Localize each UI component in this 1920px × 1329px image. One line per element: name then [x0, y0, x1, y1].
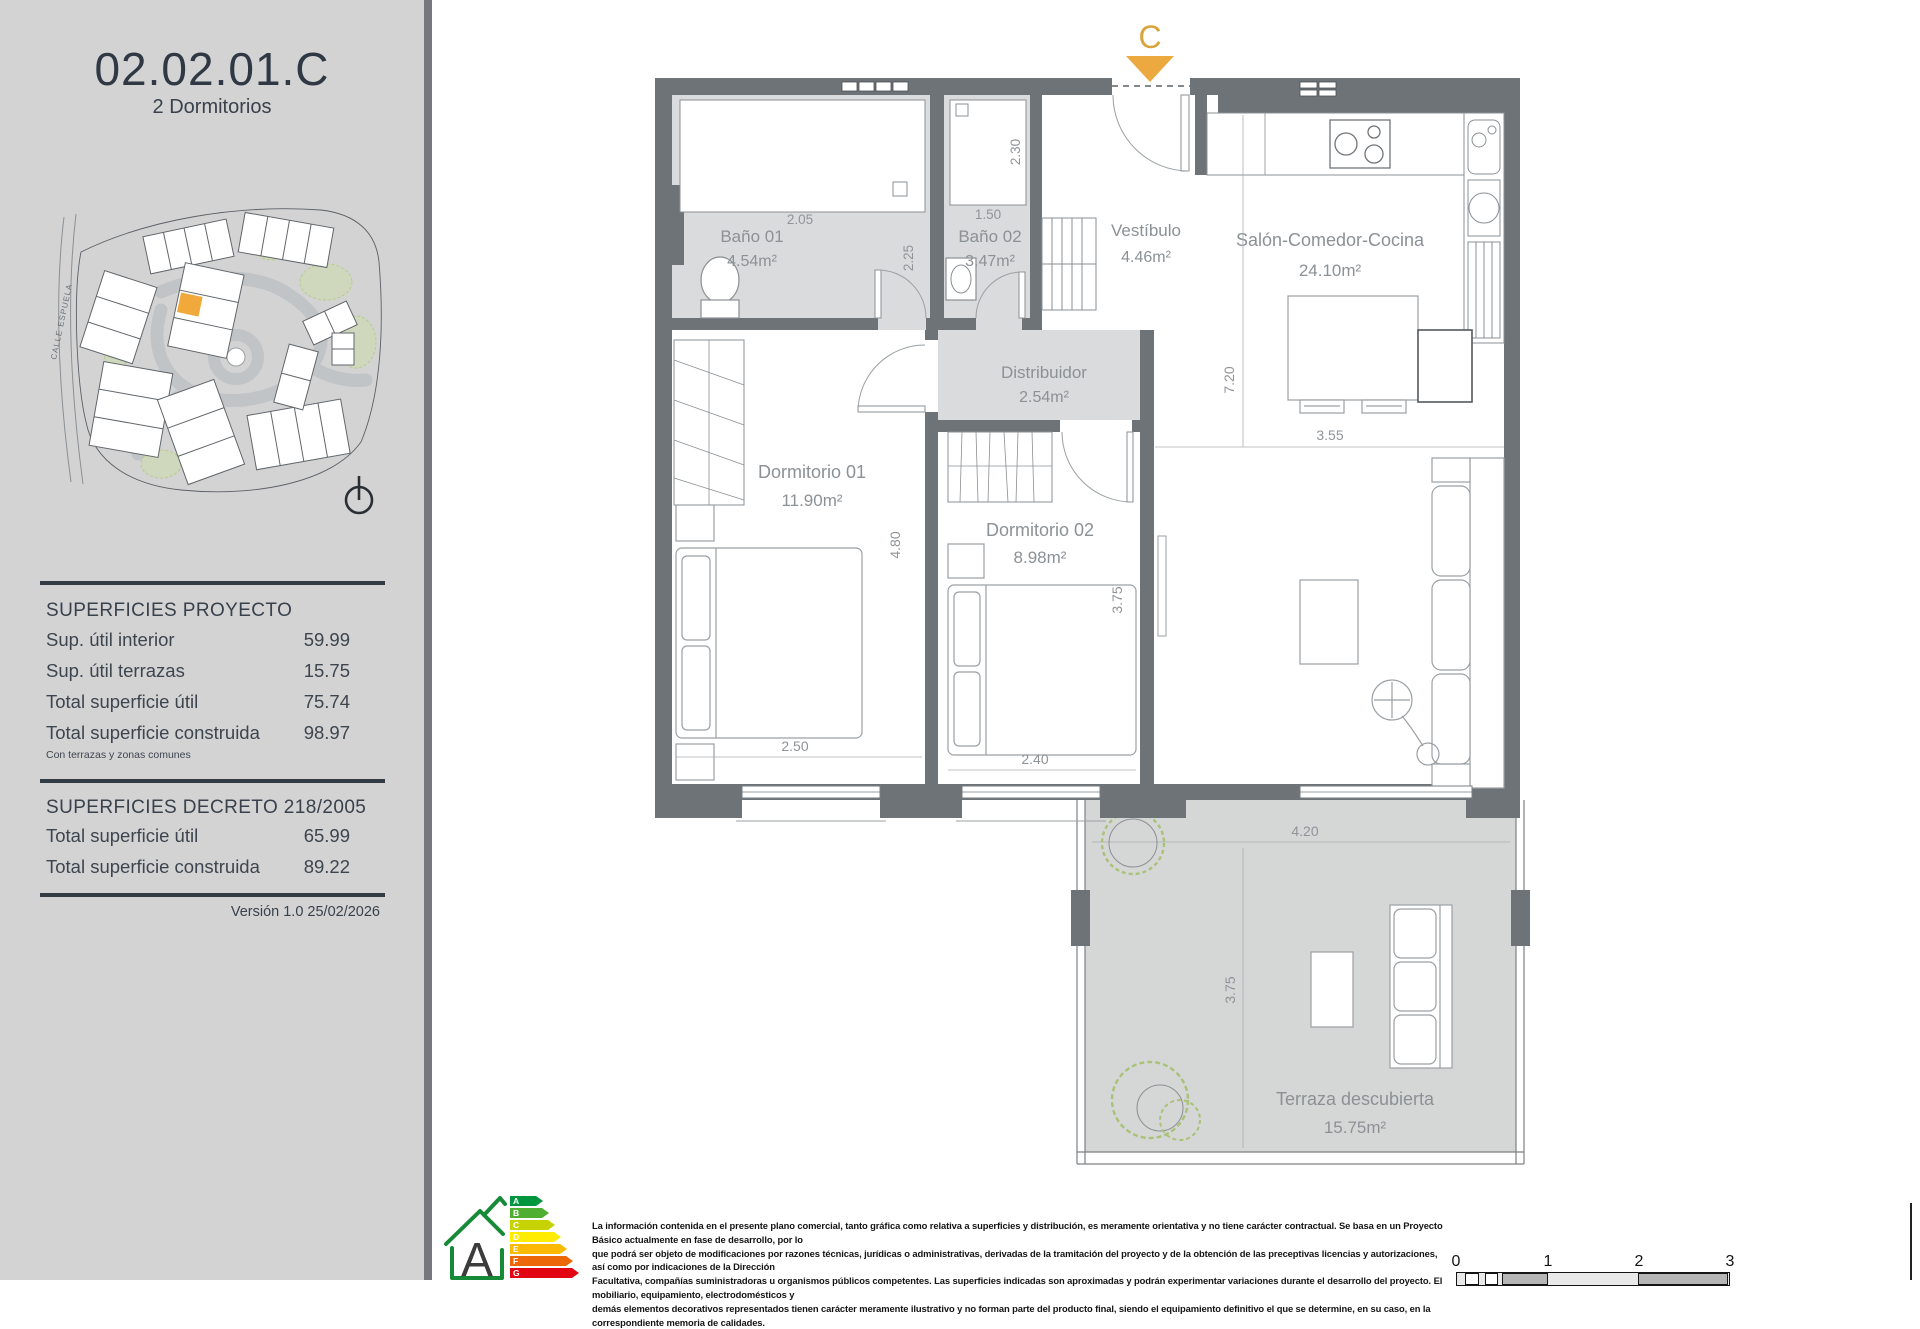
room-label: Baño 02 [958, 227, 1021, 246]
wardrobe-icon [674, 340, 744, 505]
room-area: 4.46m² [1121, 249, 1171, 266]
bed-icon [676, 505, 862, 780]
dim-bano01-width: 2.05 [787, 212, 813, 227]
dining-table [1288, 296, 1418, 413]
room-label: Dormitorio 01 [758, 462, 866, 482]
scale-bar [1456, 1272, 1730, 1286]
floorplan-sheet: { "colors": { "accent_gold": "#EBA93F", … [0, 0, 1920, 1280]
floor-lamp-icon [1372, 680, 1439, 765]
dim-dorm01-width: 2.50 [781, 738, 808, 754]
vestibule: Vestíbulo 4.46m² [1042, 218, 1181, 310]
dim-terraza-height: 3.75 [1222, 976, 1238, 1003]
svg-text:D: D [513, 1232, 519, 1242]
section-marker-letter: C [1138, 19, 1161, 55]
room-area: 4.54m² [727, 253, 777, 270]
section-marker: C [1126, 19, 1174, 82]
dim-dorm01-height: 4.80 [887, 531, 903, 558]
shower-drain-icon [893, 182, 907, 196]
room-area: 24.10m² [1299, 261, 1362, 280]
bed-icon [948, 544, 1136, 755]
scale-tick: 2 [1635, 1253, 1644, 1271]
room-area: 3.47m² [965, 253, 1015, 270]
sheet-edge-mark [1910, 1203, 1912, 1280]
svg-text:E: E [513, 1244, 519, 1254]
room-area: 11.90m² [781, 491, 842, 510]
disclaimer-line: La información contenida en el presente … [592, 1219, 1444, 1247]
dim-bano02-width: 1.50 [975, 207, 1001, 222]
kitchen-island [1418, 330, 1472, 402]
dim-terraza-width: 4.20 [1291, 823, 1318, 839]
tv-icon [1158, 536, 1166, 636]
coffee-table [1300, 580, 1358, 664]
scale-tick: 1 [1544, 1253, 1553, 1271]
room-label: Salón-Comedor-Cocina [1236, 230, 1425, 250]
disclaimer-line: Facultativa, compañías suministradoras u… [592, 1274, 1444, 1302]
disclaimer-line: que podrá ser objeto de modificaciones p… [592, 1247, 1444, 1275]
dim-dorm02-width: 2.40 [1021, 751, 1048, 767]
terrace: 4.20 3.75 Terraza descubierta 15.75m² [1071, 800, 1530, 1164]
wardrobe-icon [948, 432, 1052, 502]
section-arrow-icon [1126, 56, 1174, 82]
svg-text:F: F [513, 1256, 518, 1266]
bedroom-2: Dormitorio 02 8.98m² 3.75 2.40 [948, 432, 1136, 770]
energy-rating-letter: A [461, 1234, 493, 1280]
energy-label: A A B C D E F G [440, 1192, 590, 1280]
room-label: Distribuidor [1001, 363, 1087, 382]
dim-dorm02-height: 3.75 [1109, 586, 1125, 613]
nightstand-icon [948, 544, 984, 578]
dim-salon-height: 7.20 [1221, 366, 1237, 393]
room-label: Baño 01 [720, 227, 783, 246]
legal-disclaimer: La información contenida en el presente … [592, 1219, 1444, 1329]
terrace-pilaster [1511, 890, 1530, 946]
energy-scale: A B C D E F G [510, 1196, 579, 1278]
room-area: 15.75m² [1324, 1118, 1387, 1137]
room-label: Vestíbulo [1111, 221, 1181, 240]
svg-text:B: B [513, 1208, 519, 1218]
scale-tick: 0 [1452, 1253, 1461, 1271]
outdoor-table [1311, 952, 1353, 1027]
room-label: Terraza descubierta [1276, 1089, 1435, 1109]
room-area: 8.98m² [1014, 548, 1067, 567]
living-kitchen: Salón-Comedor-Cocina 24.10m² 7.20 3.55 [1155, 113, 1504, 788]
closet-icon [1042, 218, 1096, 310]
svg-text:A: A [513, 1196, 519, 1206]
terrace-pilaster [1071, 890, 1090, 946]
outdoor-sofa [1390, 905, 1452, 1068]
scale-tick: 3 [1726, 1253, 1735, 1271]
sofa-icon [1432, 458, 1504, 788]
door-openings [878, 318, 1140, 332]
nightstand-icon [676, 744, 714, 780]
nightstand-icon [676, 505, 714, 541]
svg-text:G: G [513, 1268, 520, 1278]
dim-bano01-depth: 2.25 [901, 245, 916, 271]
svg-text:C: C [513, 1220, 519, 1230]
hob-icon [1330, 120, 1390, 168]
dim-salon-width: 3.55 [1316, 427, 1343, 443]
entrance-door [1112, 86, 1190, 171]
disclaimer-line: demás elementos decorativos representado… [592, 1302, 1444, 1329]
shower-drain-icon [956, 104, 968, 116]
floor-plan: C 4.20 3.75 [0, 0, 1920, 1280]
kitchen-appliances [1464, 113, 1504, 343]
room-area: 2.54m² [1019, 389, 1069, 406]
room-label: Dormitorio 02 [986, 520, 1094, 540]
dim-bano02-depth: 2.30 [1008, 139, 1023, 165]
